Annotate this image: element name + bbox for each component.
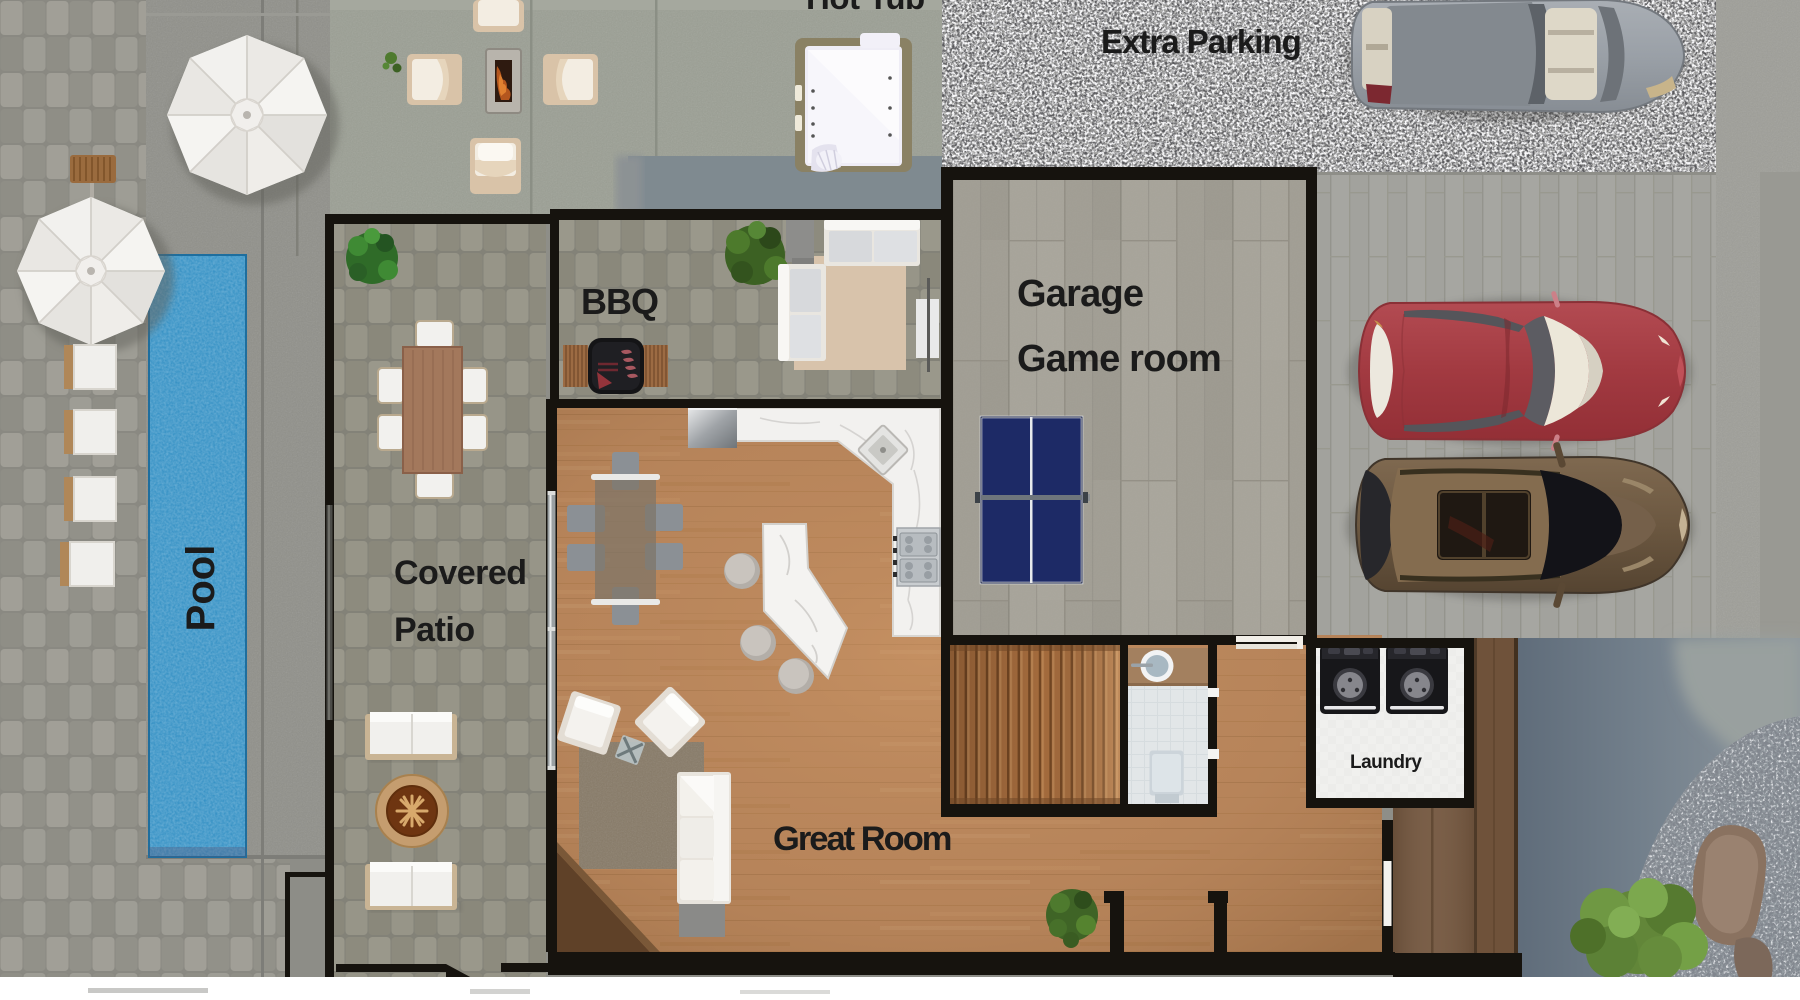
- svg-text:Patio: Patio: [394, 611, 475, 649]
- svg-text:Laundry: Laundry: [1350, 752, 1422, 773]
- svg-text:Pool: Pool: [179, 545, 223, 632]
- svg-text:Great Room: Great Room: [773, 820, 951, 858]
- svg-text:Game room: Game room: [1017, 338, 1221, 380]
- svg-text:Hot Tub: Hot Tub: [806, 0, 925, 16]
- svg-text:BBQ: BBQ: [581, 281, 658, 322]
- svg-text:Covered: Covered: [394, 554, 527, 592]
- svg-text:Garage: Garage: [1017, 273, 1143, 315]
- svg-text:Extra Parking: Extra Parking: [1101, 23, 1301, 60]
